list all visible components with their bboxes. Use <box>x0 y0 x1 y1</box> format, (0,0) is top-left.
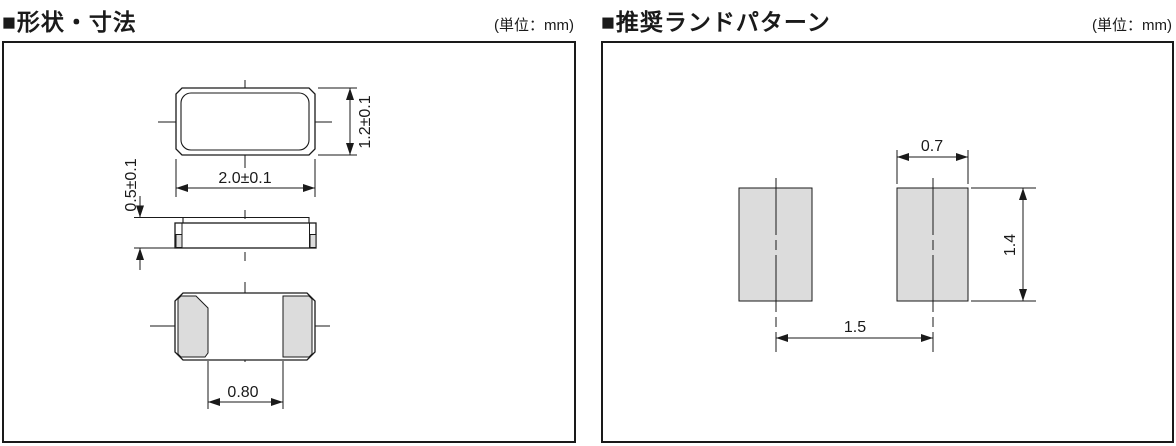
dimension-pad-height: 1.4 <box>971 188 1036 301</box>
dimension-pad-pitch: 1.5 <box>776 319 933 338</box>
left-panel-unit-label: (単位：mm) <box>494 14 574 35</box>
land-pattern: 0.7 1.4 1.5 <box>739 138 1036 352</box>
package-body-side <box>175 223 316 248</box>
land-pattern-panel: 0.7 1.4 1.5 <box>601 41 1174 443</box>
terminal-left-side <box>176 235 182 248</box>
dimension-terminal-gap: 0.80 <box>208 361 283 409</box>
dim-label-body-height: 1.2±0.1 <box>357 95 374 148</box>
terminal-pad-left-bottom <box>178 296 208 357</box>
bottom-view: 0.80 <box>150 282 330 409</box>
package-outline-top <box>176 88 315 155</box>
shape-dimensions-panel: 1.2±0.1 2.0±0.1 0.5±0.1 <box>2 41 576 443</box>
dim-label-body-thickness: 0.5±0.1 <box>123 158 140 211</box>
left-panel-header: ■形状・寸法 (単位：mm) <box>2 3 574 37</box>
right-panel-header: ■推奨ランドパターン (単位：mm) <box>601 3 1172 37</box>
dim-label-pad-width: 0.7 <box>921 138 943 155</box>
right-panel-title: ■推奨ランドパターン <box>601 3 831 37</box>
land-pattern-drawing: 0.7 1.4 1.5 <box>603 43 1172 441</box>
right-panel-unit-label: (単位：mm) <box>1092 14 1172 35</box>
package-lid-side <box>183 218 309 224</box>
terminal-pad-right-bottom <box>283 296 312 357</box>
left-panel-title: ■形状・寸法 <box>2 3 137 37</box>
dim-label-pad-height: 1.4 <box>1002 234 1019 256</box>
dim-label-body-width: 2.0±0.1 <box>218 170 271 187</box>
dimension-body-thickness: 0.5±0.1 <box>123 158 183 270</box>
terminal-right-side <box>310 235 316 248</box>
dim-label-pad-pitch: 1.5 <box>844 319 866 336</box>
top-view: 1.2±0.1 2.0±0.1 <box>158 80 374 197</box>
dimension-pad-width: 0.7 <box>897 138 968 184</box>
shape-dimensions-drawing: 1.2±0.1 2.0±0.1 0.5±0.1 <box>4 43 574 441</box>
dim-label-terminal-gap: 0.80 <box>227 384 258 401</box>
